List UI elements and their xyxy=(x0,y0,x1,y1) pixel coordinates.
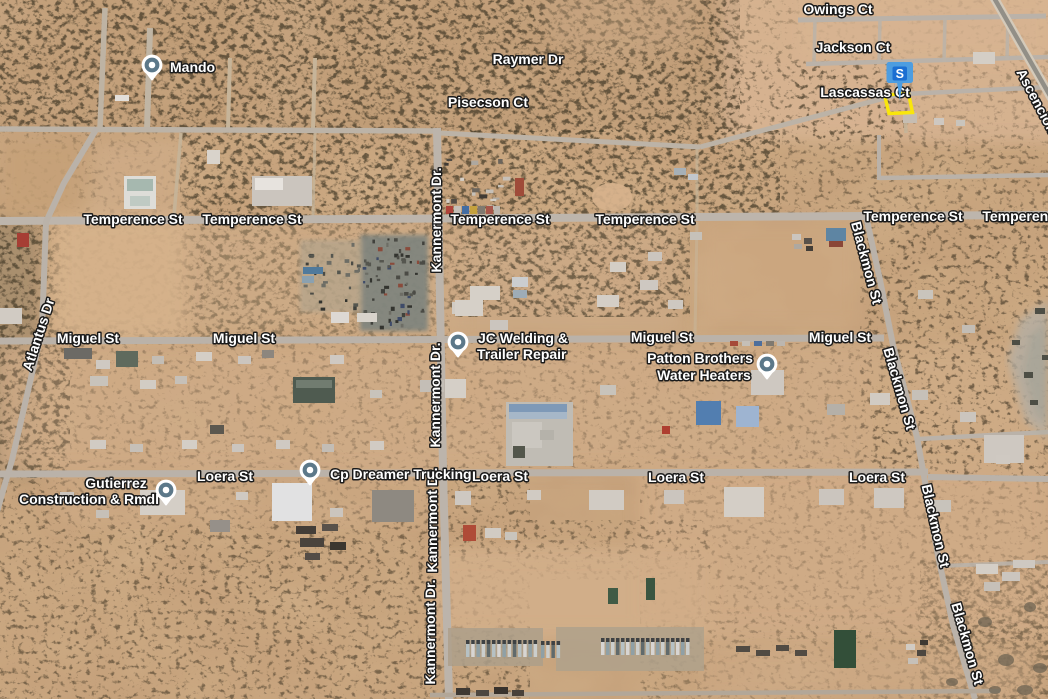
svg-text:Miguel St: Miguel St xyxy=(57,330,120,346)
svg-text:Pisecson Ct: Pisecson Ct xyxy=(448,94,528,110)
svg-text:Mando: Mando xyxy=(170,59,215,75)
svg-text:Temperence St: Temperence St xyxy=(863,208,963,224)
svg-text:Loera St: Loera St xyxy=(197,468,253,484)
svg-text:Trailer Repair: Trailer Repair xyxy=(477,346,567,362)
svg-text:Temperence St: Temperence St xyxy=(83,211,183,227)
svg-text:Gutierrez: Gutierrez xyxy=(85,475,146,491)
svg-text:Temperence St: Temperence St xyxy=(595,211,695,227)
svg-text:Construction & Rmdl: Construction & Rmdl xyxy=(19,491,159,507)
svg-text:JC Welding &: JC Welding & xyxy=(478,330,568,346)
svg-text:Miguel St: Miguel St xyxy=(631,329,694,345)
svg-text:Kannermont Dr.: Kannermont Dr. xyxy=(422,579,438,684)
svg-text:Owings Ct: Owings Ct xyxy=(803,1,873,17)
svg-text:Water Heaters: Water Heaters xyxy=(657,367,751,383)
svg-text:S: S xyxy=(896,67,904,81)
svg-text:Lascassas Ct: Lascassas Ct xyxy=(820,84,910,100)
svg-text:Temperence St: Temperence St xyxy=(982,208,1048,224)
svg-text:Temperence St: Temperence St xyxy=(202,211,302,227)
svg-text:Raymer Dr: Raymer Dr xyxy=(493,51,564,67)
svg-text:Kannermont Dr.: Kannermont Dr. xyxy=(427,342,443,447)
svg-text:Loera St: Loera St xyxy=(648,469,704,485)
svg-text:Loera St: Loera St xyxy=(849,469,905,485)
svg-text:Patton Brothers: Patton Brothers xyxy=(647,350,753,366)
svg-text:Jackson Ct: Jackson Ct xyxy=(816,39,891,55)
svg-text:Kannermont Dr.: Kannermont Dr. xyxy=(428,167,444,272)
svg-text:Kannermont Dr.: Kannermont Dr. xyxy=(424,467,440,572)
svg-text:Loera St: Loera St xyxy=(472,468,528,484)
svg-text:Miguel St: Miguel St xyxy=(213,330,276,346)
svg-text:Cp Dreamer Trucking: Cp Dreamer Trucking xyxy=(330,466,472,482)
svg-text:Miguel St: Miguel St xyxy=(809,329,872,345)
svg-text:Temperence St: Temperence St xyxy=(450,211,550,227)
